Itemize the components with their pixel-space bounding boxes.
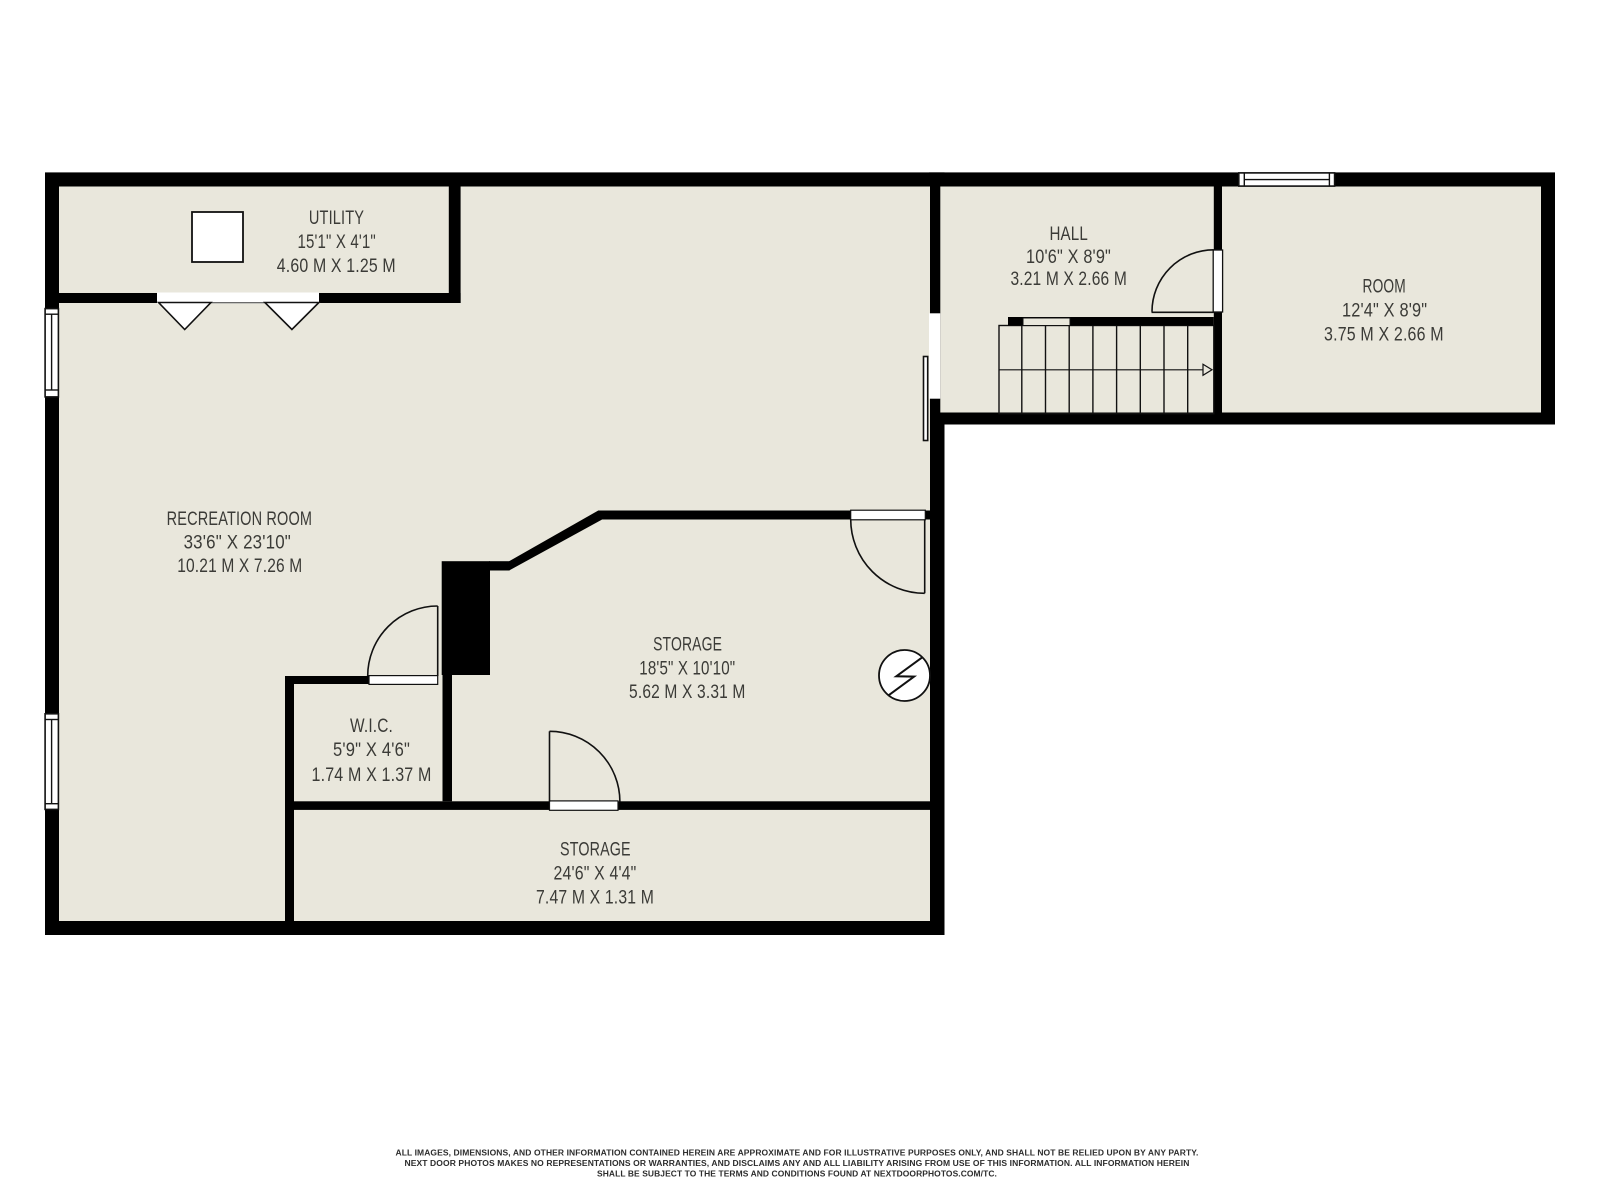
svg-text:10.21 M X 7.26 M: 10.21 M X 7.26 M [177, 555, 302, 577]
svg-text:5.62 M X 3.31 M: 5.62 M X 3.31 M [629, 681, 746, 703]
svg-text:1.74 M X 1.37 M: 1.74 M X 1.37 M [312, 764, 432, 786]
svg-text:SHALL BE SUBJECT TO THE TERMS: SHALL BE SUBJECT TO THE TERMS AND CONDIT… [597, 1168, 997, 1178]
svg-text:5'9" X 4'6": 5'9" X 4'6" [333, 739, 410, 761]
svg-text:3.75 M X 2.66 M: 3.75 M X 2.66 M [1324, 324, 1444, 346]
svg-text:RECREATION ROOM: RECREATION ROOM [167, 508, 313, 530]
svg-text:4.60 M X 1.25 M: 4.60 M X 1.25 M [277, 255, 396, 277]
svg-text:12'4" X 8'9": 12'4" X 8'9" [1342, 300, 1427, 322]
svg-text:ROOM: ROOM [1363, 276, 1406, 298]
svg-text:STORAGE: STORAGE [653, 633, 722, 655]
svg-text:15'1" X 4'1": 15'1" X 4'1" [298, 231, 376, 253]
svg-text:33'6" X 23'10": 33'6" X 23'10" [184, 532, 291, 554]
svg-text:NEXT DOOR PHOTOS MAKES NO REPR: NEXT DOOR PHOTOS MAKES NO REPRESENTATION… [405, 1158, 1190, 1168]
svg-text:STORAGE: STORAGE [560, 838, 631, 860]
svg-text:18'5" X 10'10": 18'5" X 10'10" [639, 657, 735, 679]
svg-text:10'6" X 8'9": 10'6" X 8'9" [1026, 246, 1111, 268]
svg-text:HALL: HALL [1049, 223, 1088, 245]
svg-text:7.47 M X 1.31 M: 7.47 M X 1.31 M [536, 886, 654, 908]
svg-text:UTILITY: UTILITY [309, 207, 364, 229]
svg-text:W.I.C.: W.I.C. [350, 715, 393, 737]
svg-text:3.21 M X 2.66 M: 3.21 M X 2.66 M [1010, 268, 1127, 290]
svg-text:24'6" X 4'4": 24'6" X 4'4" [554, 863, 637, 885]
svg-text:ALL IMAGES, DIMENSIONS, AND OT: ALL IMAGES, DIMENSIONS, AND OTHER INFORM… [396, 1148, 1199, 1158]
